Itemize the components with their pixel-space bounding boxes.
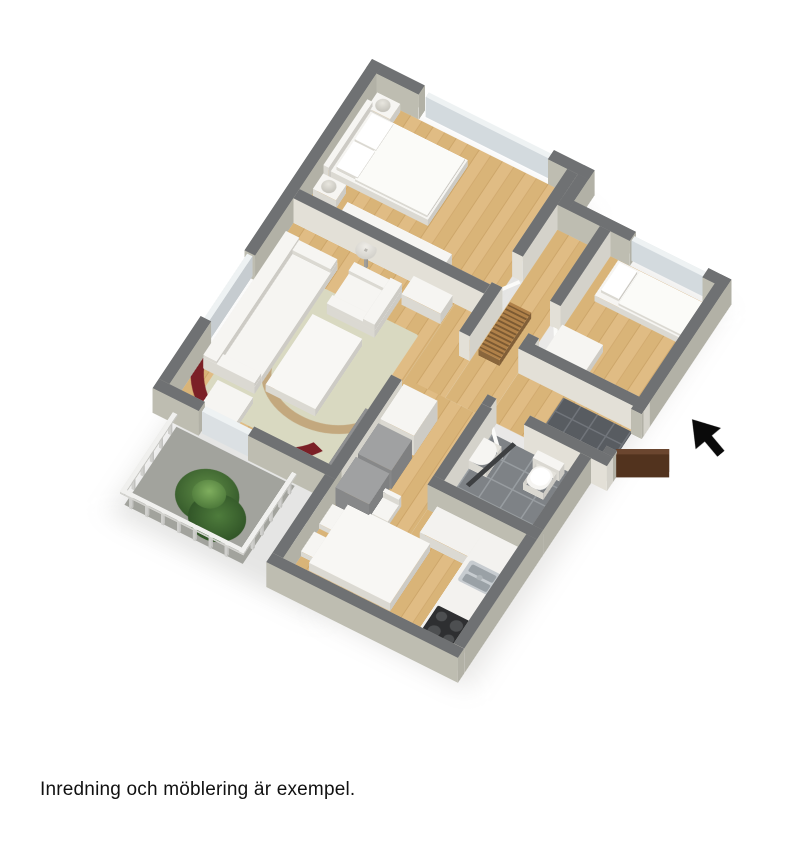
floorplan-scene: [0, 0, 800, 843]
entrance-direction-arrow-icon: [679, 409, 733, 465]
floorplan-3d: [81, 84, 752, 710]
page: { "caption": { "text": "Inredning och mö…: [0, 0, 800, 843]
caption: Inredning och möblering är exempel.: [40, 779, 355, 801]
entrance-door: [616, 454, 669, 477]
